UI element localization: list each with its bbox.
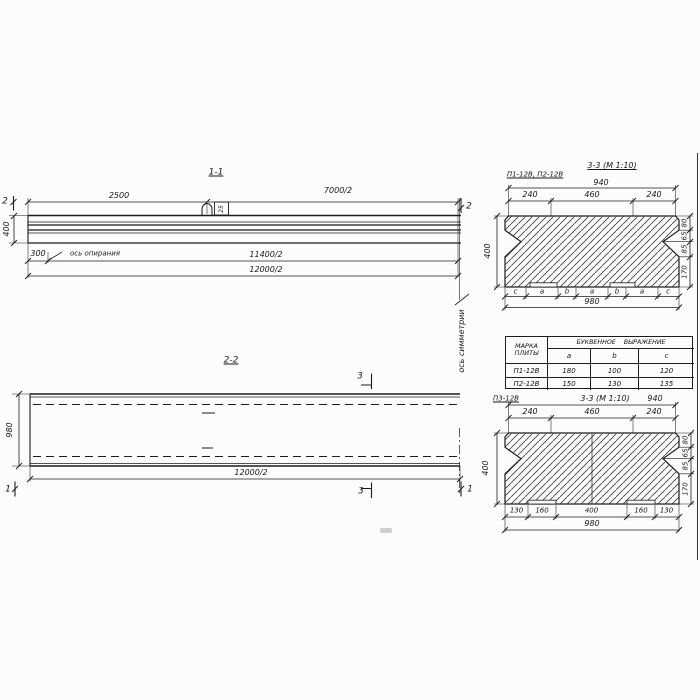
cut-mark-3-bottom: 3: [358, 488, 364, 497]
blueprint-page: { "section_1_1": { "title": "1-1", "cut_…: [0, 0, 700, 700]
letter-b-1: b: [565, 288, 569, 295]
lower-section-mark-label: П3-12В: [493, 396, 519, 403]
dim-170-upper: 170: [682, 265, 689, 278]
section-1-1-title: 1-1: [209, 169, 224, 178]
dim-460-lower: 460: [584, 408, 599, 416]
table-row1-b: 100: [591, 364, 639, 378]
dim-12000-2-beam: 12000/2: [249, 266, 282, 274]
dim-400-lower: 400: [482, 460, 490, 475]
dim-85-upper: 85: [682, 245, 689, 254]
dim-12000-2-plan: 12000/2: [234, 469, 267, 477]
dim-65-upper: 65: [682, 232, 689, 241]
scan-artifact: [380, 528, 392, 533]
dim-85-lower: 85: [683, 462, 690, 471]
dim-130-left: 130: [510, 508, 523, 515]
table-header-mark: МАРКА ПЛИТЫ: [506, 337, 548, 364]
cut-mark-3-top: 3: [357, 373, 363, 382]
table-row2-c: 135: [639, 378, 694, 390]
dim-400-upper: 400: [484, 243, 492, 258]
table-header-mark-line2: ПЛИТЫ: [515, 350, 539, 357]
dim-980-lower: 980: [584, 520, 599, 528]
table-row2-a: 150: [548, 378, 591, 390]
dim-170-lower: 170: [683, 482, 690, 495]
dim-400-beam: 400: [3, 221, 11, 236]
upper-section-mark-label: П1-12В, П2-12В: [507, 172, 563, 179]
letter-a-3: a: [640, 288, 644, 295]
cut-mark-2-left: 2: [2, 198, 8, 207]
dim-300: 300: [30, 250, 45, 258]
cut-mark-1-left: 1: [5, 486, 11, 495]
table-row1-a: 180: [548, 364, 591, 378]
letter-values-table: МАРКА ПЛИТЫ БУКВЕННОЕ ВЫРАЖЕНИЕ a b c П1…: [505, 336, 693, 389]
letter-a-1: a: [540, 288, 544, 295]
dim-400-bottom: 400: [585, 508, 598, 515]
table-subheader-c: c: [639, 349, 694, 364]
lower-section-title: 3-3 (М 1:10): [580, 395, 629, 403]
dim-160-left: 160: [535, 508, 548, 515]
dim-80-lower: 80: [683, 436, 690, 445]
dim-130-right: 130: [660, 508, 673, 515]
dim-240-upper-right: 240: [646, 191, 661, 199]
letter-c-1: c: [514, 288, 518, 295]
dim-80-upper: 80: [682, 219, 689, 228]
table-row2-mark: П2-12В: [506, 378, 548, 390]
dim-940-upper: 940: [593, 179, 608, 187]
section-2-2-title: 2-2: [224, 357, 239, 366]
dim-460-upper: 460: [584, 191, 599, 199]
table-subheader-a: a: [548, 349, 591, 364]
table-subheader-b: b: [591, 349, 639, 364]
dim-7000-2: 7000/2: [324, 187, 352, 195]
upper-section-title: 3-3 (М 1:10): [587, 162, 636, 170]
dim-240-lower-right: 240: [646, 408, 661, 416]
dim-2500: 2500: [109, 192, 129, 200]
dim-65-lower: 65: [683, 449, 690, 458]
bearing-axis-label: ось опирания: [70, 251, 120, 258]
dim-11400-2: 11400/2: [249, 251, 282, 259]
table-header-expression: БУКВЕННОЕ ВЫРАЖЕНИЕ: [548, 337, 694, 349]
dim-240-lower-left: 240: [522, 408, 537, 416]
dim-240-upper-left: 240: [522, 191, 537, 199]
dim-940-lower: 940: [647, 395, 662, 403]
dim-980-plan: 980: [6, 422, 14, 437]
table-row1-mark: П1-12В: [506, 364, 548, 378]
cut-mark-2-right: 2: [466, 203, 472, 212]
lifting-loop-tag: 25: [219, 205, 225, 213]
dim-980-upper: 980: [584, 298, 599, 306]
letter-c-2: c: [666, 288, 670, 295]
letter-a-2: a: [590, 288, 594, 295]
letter-b-2: b: [615, 288, 619, 295]
table-row1-c: 120: [639, 364, 694, 378]
symmetry-axis-label: ось симметрии: [458, 309, 466, 372]
cut-mark-1-right: 1: [467, 486, 473, 495]
table-row2-b: 130: [591, 378, 639, 390]
dim-160-right: 160: [634, 508, 647, 515]
